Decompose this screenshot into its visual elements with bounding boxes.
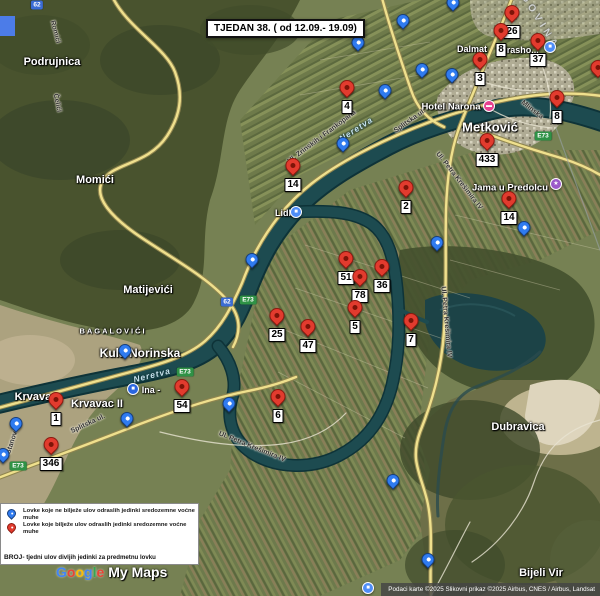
road-shield-E73: E73 (240, 296, 257, 305)
red-marker-346[interactable]: 346 (40, 437, 63, 471)
blue-marker[interactable] (0, 448, 10, 461)
place-label: Bijeli Vir (519, 567, 563, 579)
catch-count-label: 3 (474, 72, 486, 86)
place-label: BAGALOVIĆI (79, 327, 146, 336)
map-attribution: Podaci karte ©2025 Slikovni prikaz ©2025… (381, 583, 600, 596)
blue-marker[interactable] (431, 236, 444, 249)
blue-pin-icon[interactable] (376, 81, 394, 99)
red-pin-icon[interactable] (344, 297, 365, 318)
red-pin-icon[interactable] (498, 188, 519, 209)
red-pin-icon[interactable] (476, 130, 497, 151)
blue-pin-icon[interactable] (334, 134, 352, 152)
red-pin-icon[interactable] (371, 256, 392, 277)
blue-pin-icon[interactable] (428, 233, 446, 251)
red-pin-icon[interactable] (335, 248, 356, 269)
red-pin-icon[interactable] (501, 2, 522, 23)
catch-count-label: 346 (40, 457, 63, 471)
red-marker-1[interactable]: 1 (49, 392, 64, 426)
red-pin-icon[interactable] (490, 20, 511, 41)
legend-note: BROJ- tjedni ulov divljih jedinki za pre… (4, 554, 195, 561)
red-marker-433[interactable]: 433 (476, 133, 499, 167)
catch-count-label: 7 (405, 333, 417, 347)
map-canvas[interactable]: PodrujnicaMomićiMatijevićiBAGALOVIĆIKula… (0, 0, 600, 596)
red-pin-icon (5, 521, 18, 534)
legend-item-text: Lovke koje bilježe ulov odraslih jedinki… (23, 522, 195, 536)
red-marker-8[interactable]: 8 (494, 23, 509, 57)
red-marker-6[interactable]: 6 (271, 389, 286, 423)
legend-item-text: Lovke koje ne bilježe ulov odraslih jedi… (23, 508, 195, 522)
catch-count-label: 8 (495, 43, 507, 57)
blue-pin-icon[interactable] (384, 471, 402, 489)
blue-marker[interactable] (387, 474, 400, 487)
hotel-narona-icon[interactable]: ▬ (483, 100, 495, 112)
road-shield-E73: E73 (177, 368, 194, 377)
jama-u-predolcu-icon[interactable]: ★ (550, 178, 562, 190)
catch-count-label: 14 (500, 211, 517, 225)
red-marker-4[interactable]: 4 (340, 80, 355, 114)
red-pin-icon[interactable] (267, 386, 288, 407)
blue-pin-icon[interactable] (419, 550, 437, 568)
red-marker-5[interactable]: 5 (348, 300, 363, 334)
legend-item-blue: Lovke koje ne bilježe ulov odraslih jedi… (4, 508, 195, 522)
road-shield-62: 62 (31, 1, 43, 10)
map-title-text: TJEDAN 38. ( od 12.09.- 19.09) (214, 23, 357, 34)
blue-marker[interactable] (246, 253, 259, 266)
red-pin-icon[interactable] (400, 310, 421, 331)
red-pin-icon[interactable] (297, 316, 318, 337)
blue-pin-icon[interactable] (413, 60, 431, 78)
catch-count-label: 25 (268, 328, 285, 342)
red-marker[interactable] (591, 60, 600, 75)
catch-count-label: 433 (476, 153, 499, 167)
blue-marker[interactable] (337, 137, 350, 150)
blue-pin-icon[interactable] (118, 409, 136, 427)
catch-count-label: 6 (272, 409, 284, 423)
blue-marker[interactable] (397, 14, 410, 27)
blue-pin-icon[interactable] (7, 414, 25, 432)
road-shield-62: 62 (221, 298, 233, 307)
red-marker-8[interactable]: 8 (550, 90, 565, 124)
legend-rows: Lovke koje ne bilježe ulov odraslih jedi… (4, 508, 195, 536)
blue-marker[interactable] (422, 553, 435, 566)
map-title-box: TJEDAN 38. ( od 12.09.- 19.09) (206, 19, 365, 38)
blue-marker[interactable] (119, 344, 132, 357)
red-marker-3[interactable]: 3 (473, 52, 488, 86)
blue-marker[interactable] (446, 68, 459, 81)
blue-marker[interactable] (379, 84, 392, 97)
catch-count-label: 4 (341, 100, 353, 114)
red-marker-14[interactable]: 14 (284, 158, 301, 192)
road-shield-E73: E73 (10, 462, 27, 471)
place-label: Dubravica (491, 421, 544, 433)
place-label: Momići (76, 174, 114, 186)
place-label: Hotel Narona (421, 102, 480, 113)
blue-marker[interactable] (518, 221, 531, 234)
google-logo-letter: o (75, 564, 84, 580)
red-marker-14[interactable]: 14 (500, 191, 517, 225)
blue-pin-icon[interactable] (243, 250, 261, 268)
red-pin-icon[interactable] (336, 77, 357, 98)
blue-pin-icon (5, 507, 18, 520)
place-label: Krvavac II (71, 398, 123, 410)
catch-count-label: 14 (284, 178, 301, 192)
lidl-poi-icon[interactable]: ■ (290, 206, 302, 218)
red-pin-icon[interactable] (45, 389, 66, 410)
blue-panel-fragment (0, 16, 15, 36)
ina-gas-icon[interactable]: ■ (127, 383, 139, 395)
catch-count-label: 54 (173, 399, 190, 413)
red-pin-icon[interactable] (527, 30, 548, 51)
red-marker-25[interactable]: 25 (268, 308, 285, 342)
road-shield-E73: E73 (535, 132, 552, 141)
red-marker-37[interactable]: 37 (529, 33, 546, 67)
blue-pin-icon[interactable] (220, 394, 238, 412)
google-logo-letter: e (96, 564, 104, 580)
blue-marker[interactable] (447, 0, 460, 9)
blue-pin-icon[interactable] (394, 11, 412, 29)
red-marker-36[interactable]: 36 (373, 259, 390, 293)
blue-pin-icon[interactable] (116, 341, 134, 359)
catch-count-label: 5 (349, 320, 361, 334)
blue-marker[interactable] (10, 417, 23, 430)
catch-count-label: 36 (373, 279, 390, 293)
blue-marker[interactable] (223, 397, 236, 410)
place-label: Lidl (275, 208, 291, 218)
legend-box: Lovke koje ne bilježe ulov odraslih jedi… (0, 503, 199, 565)
red-pin-icon[interactable] (171, 376, 192, 397)
google-logo: Google (56, 564, 104, 580)
legend-note-prefix: BROJ- (4, 554, 25, 561)
red-marker-2[interactable]: 2 (399, 180, 414, 214)
place-label: Ina - (142, 385, 161, 395)
google-logo-letter: G (56, 564, 67, 580)
red-pin-icon[interactable] (546, 87, 567, 108)
legend-note-text: tjedni ulov divljih jedinki za predmetnu… (25, 554, 156, 561)
catch-count-label: 47 (299, 339, 316, 353)
place-label: Kula Norinska (100, 346, 181, 360)
red-marker-47[interactable]: 47 (299, 319, 316, 353)
red-marker-78[interactable]: 78 (351, 269, 368, 303)
bottom-poi-icon[interactable]: ■ (362, 582, 374, 594)
red-pin-icon[interactable] (266, 305, 287, 326)
my-maps-label: My Maps (108, 564, 167, 580)
place-label: Matijevići (123, 284, 173, 296)
red-marker-7[interactable]: 7 (404, 313, 419, 347)
red-pin-icon[interactable] (395, 177, 416, 198)
red-marker-54[interactable]: 54 (173, 379, 190, 413)
red-pin-icon[interactable] (469, 49, 490, 70)
catch-count-label: 1 (50, 412, 62, 426)
red-pin-icon[interactable] (349, 266, 370, 287)
blue-marker[interactable] (121, 412, 134, 425)
blue-pin-icon[interactable] (443, 65, 461, 83)
red-pin-icon[interactable] (40, 434, 61, 455)
blue-pin-icon[interactable] (515, 218, 533, 236)
red-pin-icon[interactable] (282, 155, 303, 176)
catch-count-label: 8 (551, 110, 563, 124)
google-logo-letter: g (84, 564, 93, 580)
google-my-maps-logo[interactable]: Google My Maps (56, 564, 167, 580)
legend-item-red: Lovke koje bilježe ulov odraslih jedinki… (4, 522, 195, 536)
catch-count-label: 2 (400, 200, 412, 214)
catch-count-label: 37 (529, 53, 546, 67)
blue-marker[interactable] (416, 63, 429, 76)
place-label: Podrujnica (24, 56, 81, 68)
